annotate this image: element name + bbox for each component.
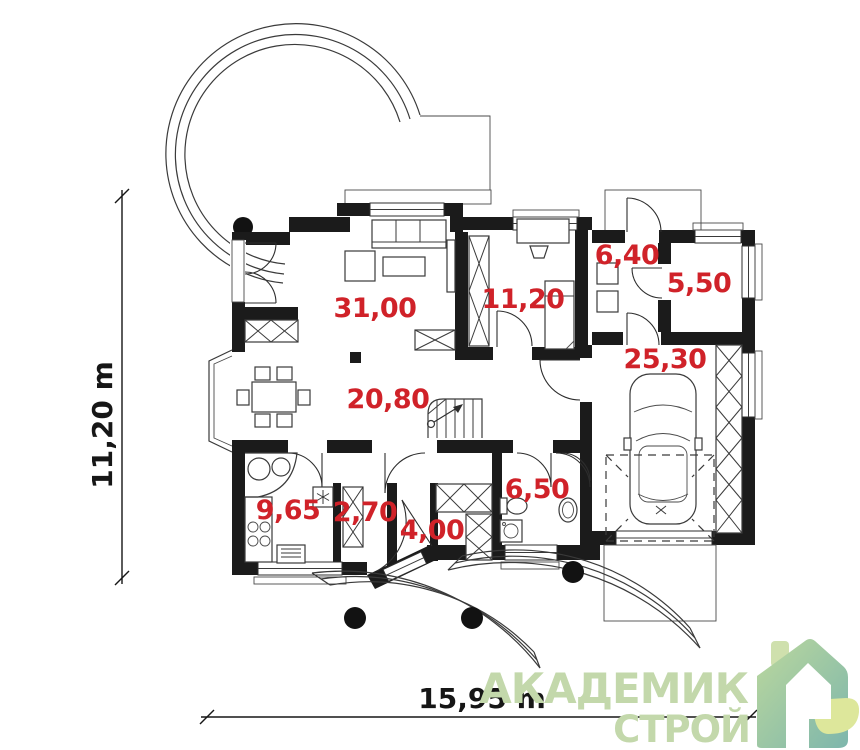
sink-bowl: [248, 458, 270, 480]
door-hall-garage: [540, 358, 592, 402]
logo: АКАДЕМИК СТРОЙ: [479, 639, 859, 750]
dimension-height: 11,20 m: [86, 189, 129, 585]
car: [624, 374, 702, 524]
floor-plan-page: 31,00 20,80 11,20 6,40 5,50 25,30 9,65 2…: [0, 0, 860, 750]
height-dimension-label: 11,20 m: [86, 361, 119, 489]
sofa: [372, 220, 446, 248]
window: [254, 562, 346, 584]
room-label-bathroom: 6,50: [505, 474, 570, 505]
logo-house-icon: [757, 639, 859, 748]
door-hall-kitchen: [288, 440, 327, 489]
terrace-column: [344, 607, 366, 629]
living-room-furniture: [345, 220, 455, 292]
room-label-utility: 6,40: [595, 240, 660, 271]
room-label-kitchen: 9,65: [256, 495, 321, 526]
terrace-column: [562, 561, 584, 583]
window: [742, 244, 762, 300]
bottom-terrace: [312, 550, 700, 668]
logo-line2: СТРОЙ: [613, 707, 750, 750]
logo-line1: АКАДЕМИК: [479, 664, 748, 713]
stairs: [428, 399, 483, 438]
entry-porch: [605, 190, 701, 232]
garage-shelving: [716, 345, 742, 533]
appliance: [277, 545, 305, 563]
sink-bowl: [272, 458, 290, 476]
closet-corridor: [436, 484, 492, 512]
door-hall-corridor: [374, 440, 435, 493]
room-label-garage: 25,30: [624, 344, 707, 375]
window: [370, 203, 444, 216]
driveway: [604, 545, 716, 621]
garage-contents: [604, 374, 716, 621]
floor-plan-drawing: 31,00 20,80 11,20 6,40 5,50 25,30 9,65 2…: [0, 0, 860, 750]
room-label-storage: 5,50: [667, 268, 732, 299]
room-label-pantry: 2,70: [333, 497, 398, 528]
dining-table: [252, 382, 296, 412]
dining-furniture: [237, 367, 310, 427]
tv-unit: [447, 240, 455, 292]
room-label-entry: 4,00: [400, 515, 465, 546]
window: [695, 230, 741, 243]
washing-machine: [500, 520, 522, 542]
desk-chair: [530, 246, 548, 258]
porch-door: [625, 198, 661, 243]
room-label-living: 31,00: [334, 293, 417, 324]
bay-window: [209, 350, 232, 452]
window: [742, 351, 762, 419]
door-hall-bedroom: [493, 311, 532, 360]
wardrobe-living: [245, 320, 298, 342]
fireplace-stub: [415, 330, 455, 350]
coffee-table: [383, 257, 425, 276]
room-label-hall: 20,80: [347, 384, 430, 415]
garage-gate: [616, 531, 712, 545]
desk: [517, 219, 569, 243]
door-utility-garage: [623, 313, 661, 345]
room-label-bedroom: 11,20: [482, 284, 565, 315]
terrace-column: [461, 607, 483, 629]
armchair: [345, 251, 375, 281]
